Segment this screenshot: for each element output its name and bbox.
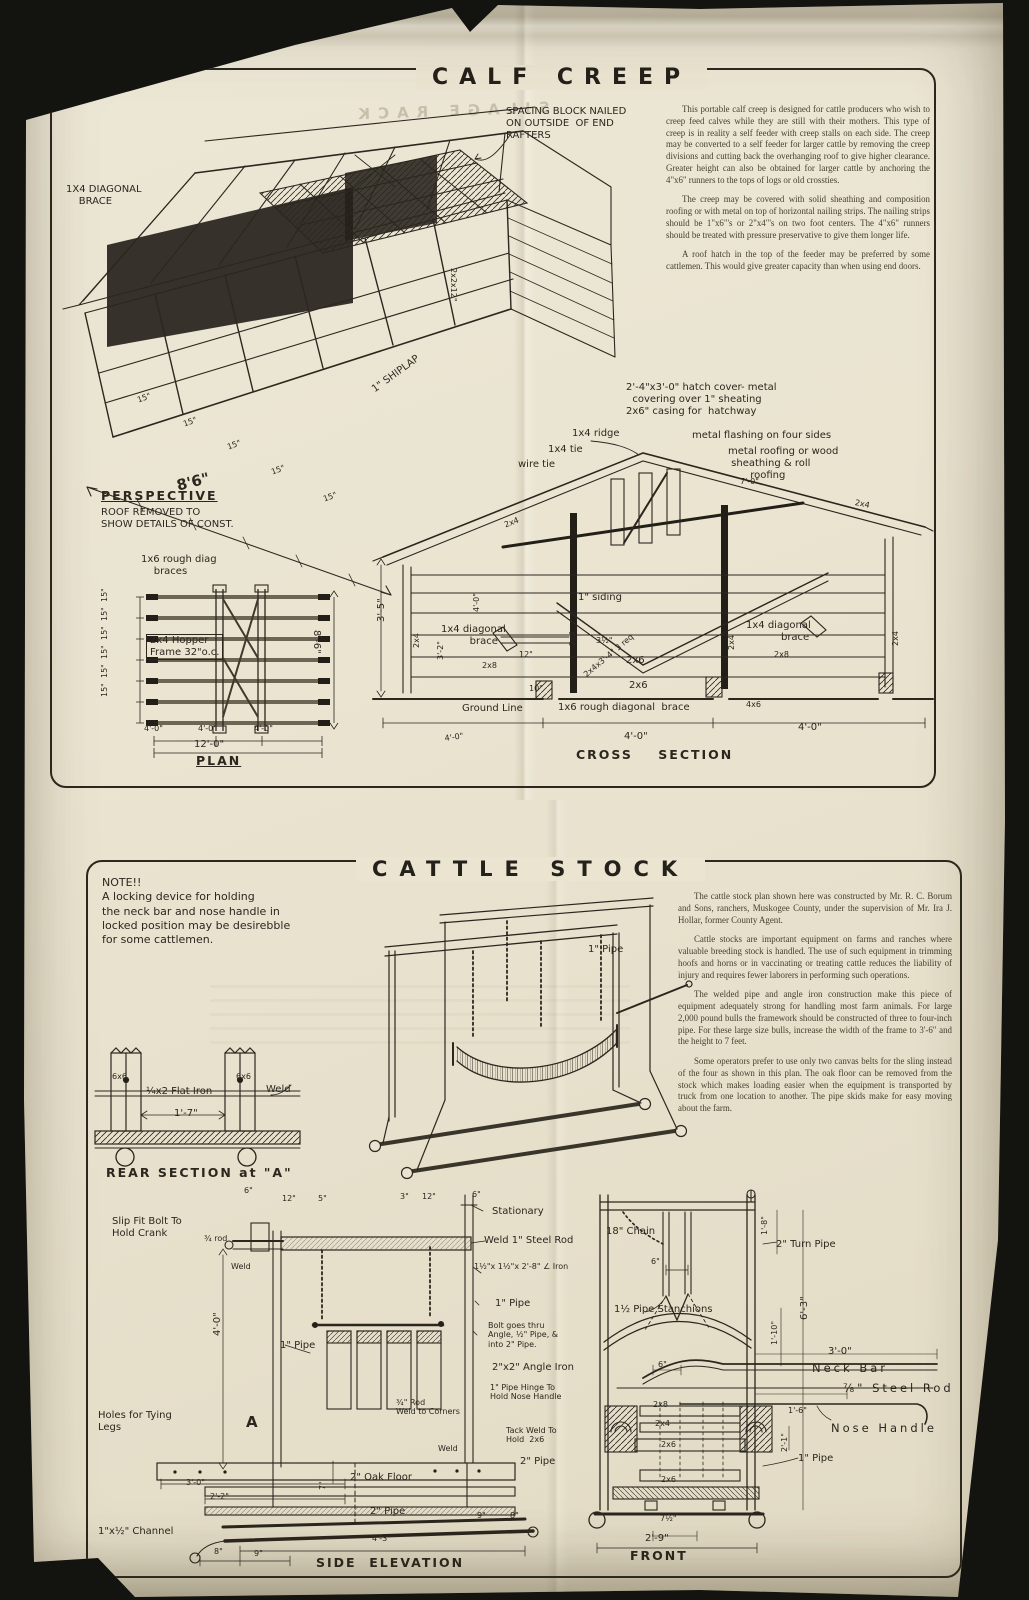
- calf-creep-text-column: This portable calf creep is designed for…: [666, 104, 930, 281]
- cattle-stock-front-drawing: [585, 1180, 965, 1572]
- calf-creep-title: CALF CREEP: [416, 65, 707, 90]
- calf-creep-paragraph: A roof hatch in the top of the feeder ma…: [666, 249, 930, 273]
- cattle-stock-text-column: The cattle stock plan shown here was con…: [678, 891, 952, 1123]
- calf-creep-cross-section-drawing: [373, 423, 933, 773]
- plan-sheet: SILAGE RACK CALF CREEP CATTLE STOCK This…: [0, 0, 1029, 1600]
- cattle-stock-side-elevation-drawing: [105, 1185, 570, 1577]
- cattle-stock-rear-section-drawing: [95, 1035, 310, 1170]
- cattle-stock-paragraph: Cattle stocks are important equipment on…: [678, 934, 952, 981]
- cattle-stock-paragraph: The cattle stock plan shown here was con…: [678, 891, 952, 926]
- cattle-stock-paragraph: The welded pipe and angle iron construct…: [678, 989, 952, 1048]
- cattle-stock-note: NOTE!! A locking device for holding the …: [102, 876, 374, 947]
- cattle-stock-paragraph: Some operators prefer to use only two ca…: [678, 1056, 952, 1115]
- calf-creep-paragraph: This portable calf creep is designed for…: [666, 104, 930, 186]
- cattle-stock-perspective-drawing: [345, 885, 690, 1190]
- calf-creep-paragraph: The creep may be covered with solid shea…: [666, 194, 930, 241]
- cattle-stock-title: CATTLE STOCK: [356, 857, 705, 881]
- calf-creep-plan-drawing: [118, 583, 348, 765]
- photo-background: { "page": { "paper_color": "#eae4d1", "i…: [0, 0, 1029, 1600]
- horizontal-fold-crease: [0, 0, 1029, 48]
